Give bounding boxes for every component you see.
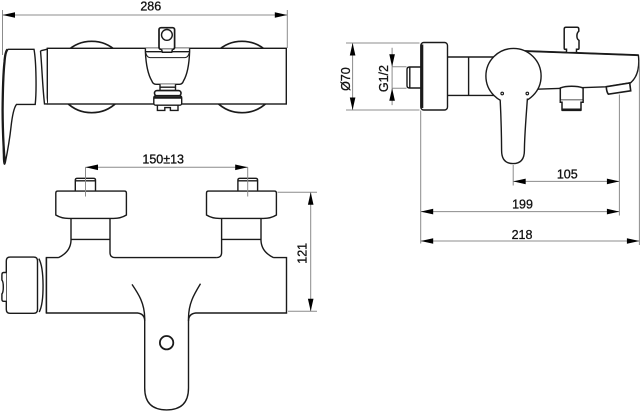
svg-text:218: 218 — [512, 228, 533, 242]
svg-text:150±13: 150±13 — [142, 152, 184, 166]
svg-text:199: 199 — [512, 198, 533, 212]
svg-text:105: 105 — [557, 167, 578, 181]
svg-text:G1/2: G1/2 — [377, 65, 391, 92]
svg-text:121: 121 — [295, 243, 309, 264]
svg-text:286: 286 — [140, 0, 161, 14]
svg-text:Ø70: Ø70 — [339, 67, 353, 91]
